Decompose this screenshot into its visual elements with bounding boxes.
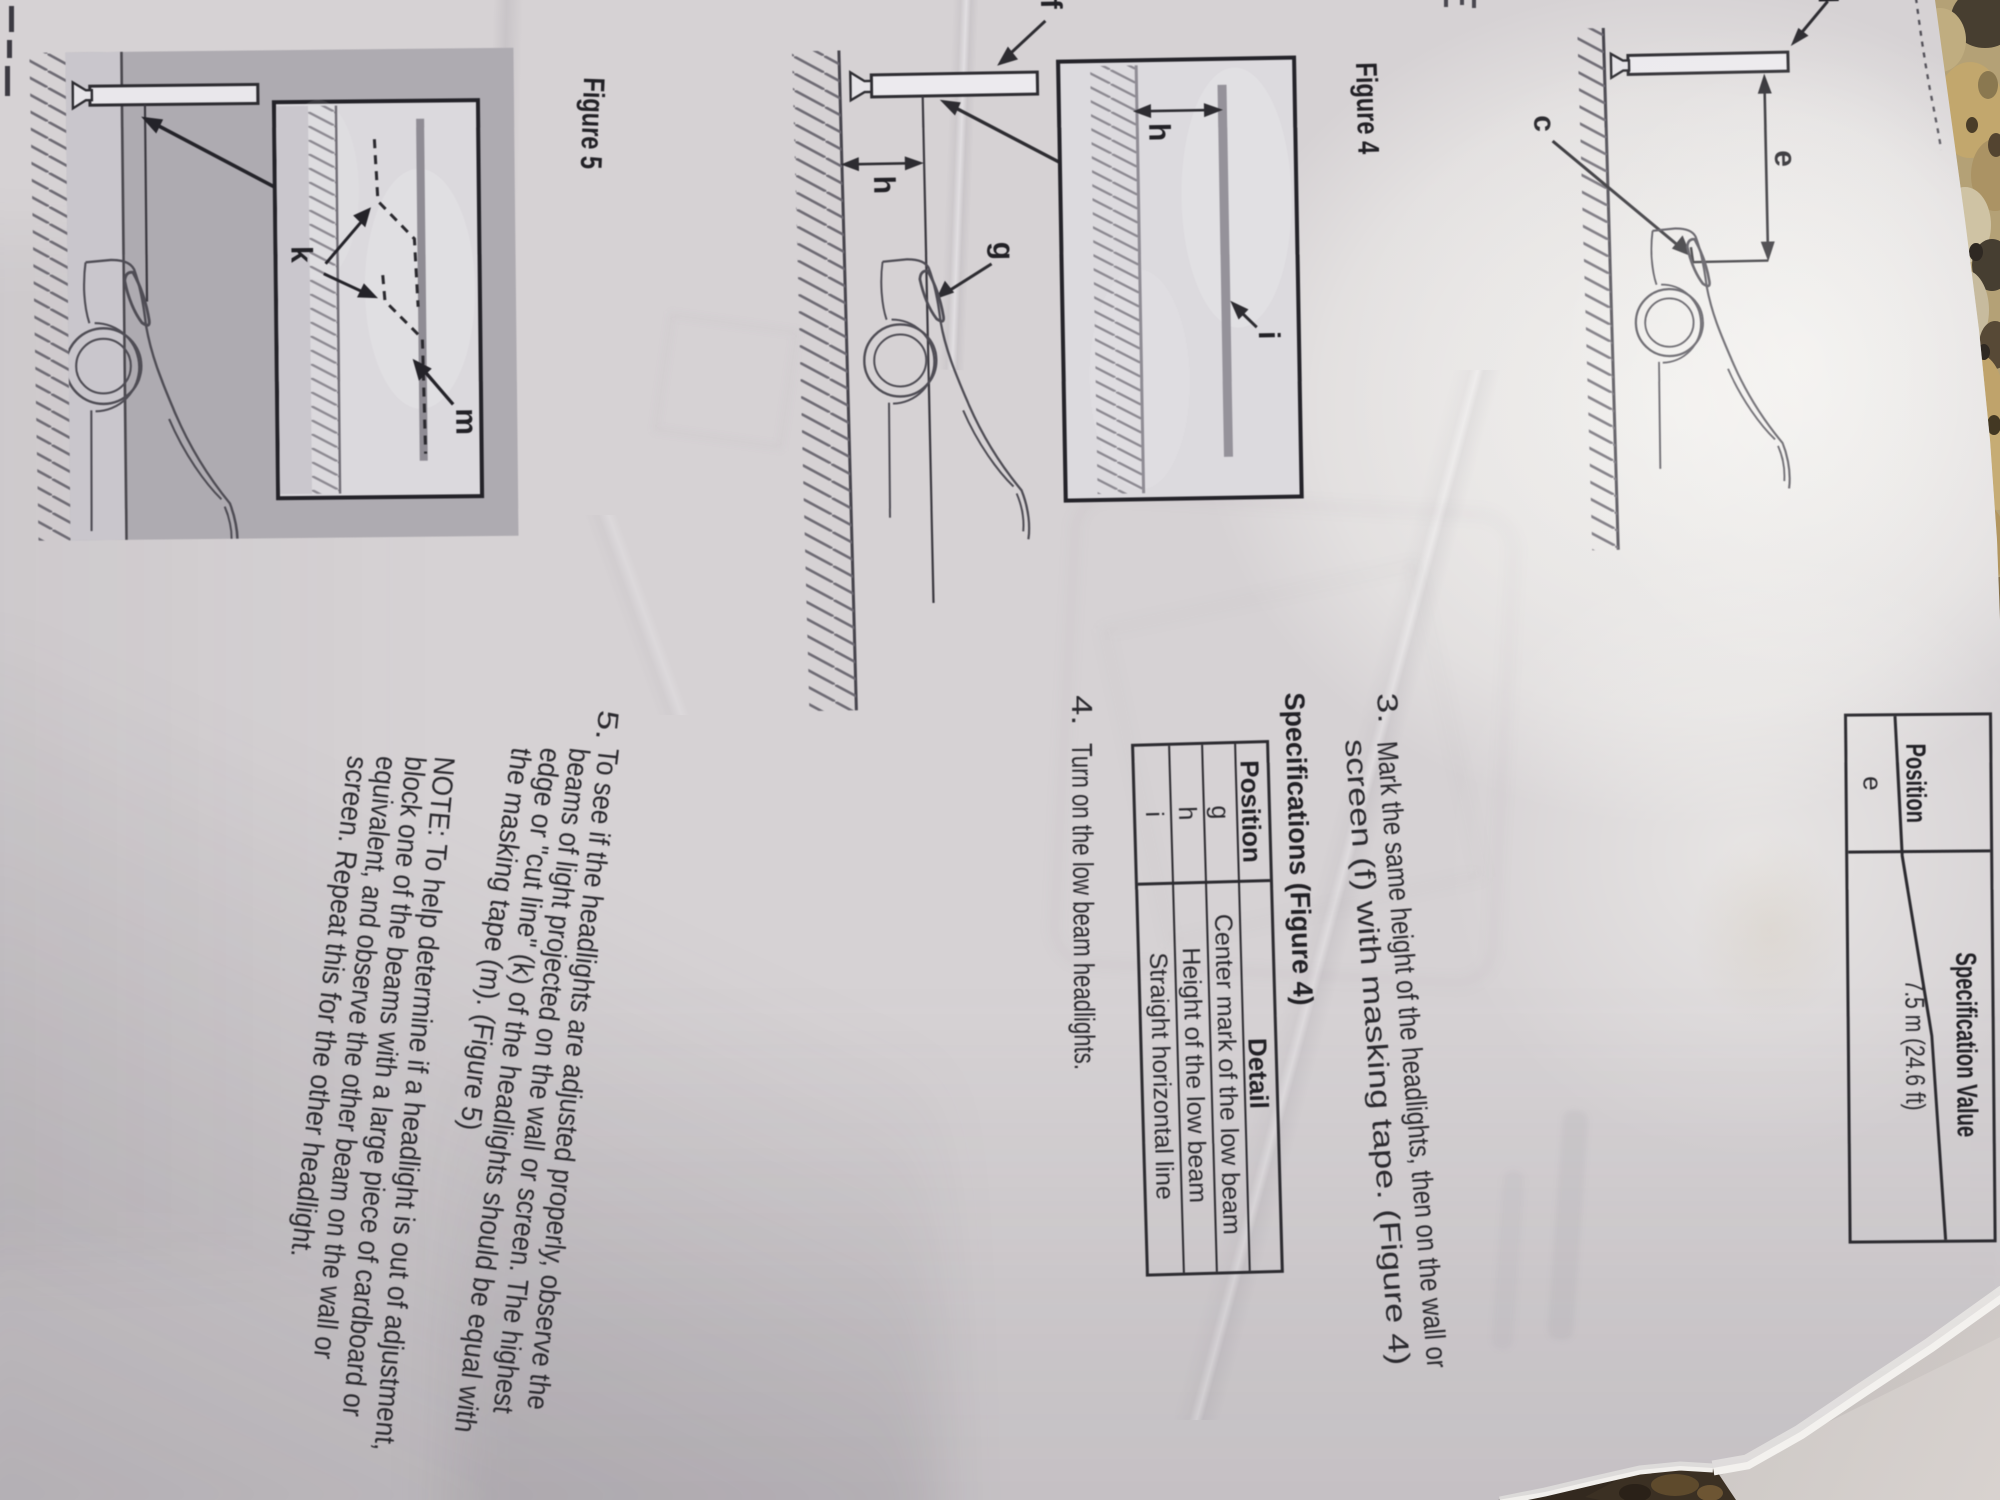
svg-text:i: i [1252, 331, 1285, 340]
svg-text:m: m [449, 408, 482, 435]
svg-text:g: g [986, 241, 1019, 260]
svg-text:f: f [1034, 0, 1067, 10]
svg-text:h: h [1142, 123, 1175, 142]
svg-text:k: k [284, 246, 317, 263]
svg-text:h: h [867, 175, 900, 194]
svg-text:e: e [1768, 150, 1801, 167]
svg-text:c: c [1527, 115, 1560, 132]
